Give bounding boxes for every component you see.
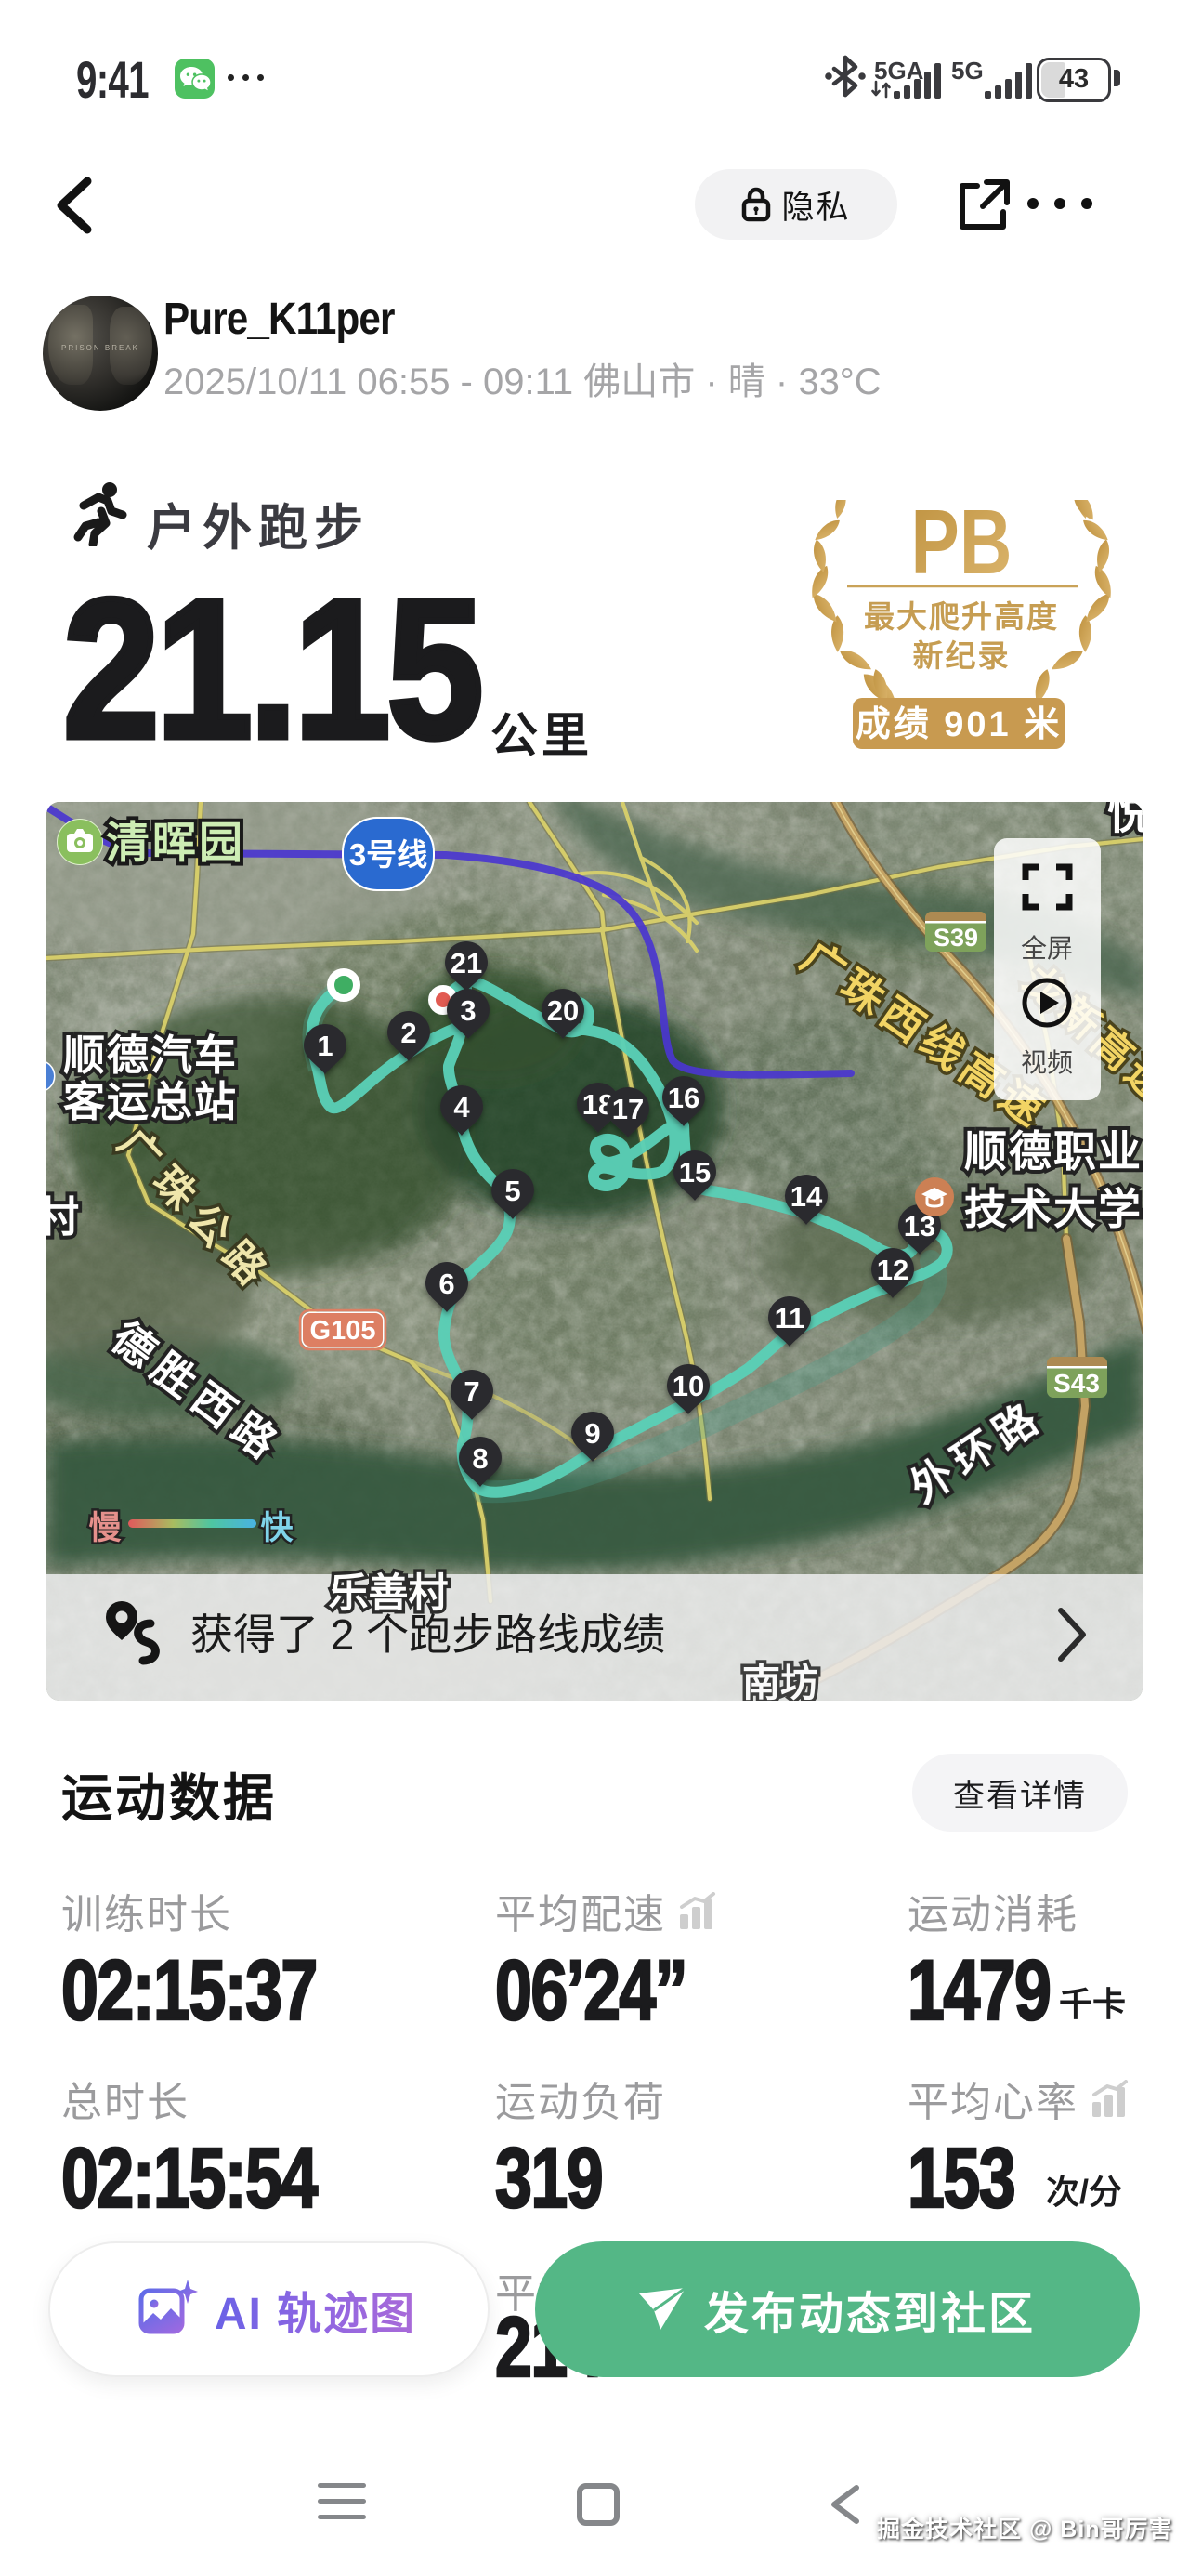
svg-text:最大爬升高度: 最大爬升高度: [864, 599, 1059, 634]
svg-text:7: 7: [464, 1375, 479, 1408]
svg-text:全屏: 全屏: [1021, 934, 1073, 963]
svg-text:17: 17: [612, 1093, 644, 1125]
svg-text:清晖园: 清晖园: [106, 818, 245, 867]
svg-text:获得了 2 个跑步路线成绩: 获得了 2 个跑步路线成绩: [190, 1610, 665, 1659]
svg-text:G105: G105: [310, 1316, 376, 1346]
svg-text:顺德汽车: 顺德汽车: [63, 1032, 238, 1079]
svg-text:S39: S39: [934, 924, 978, 952]
svg-text:视频: 视频: [1021, 1048, 1073, 1077]
svg-text:4: 4: [453, 1091, 470, 1124]
svg-text:5: 5: [504, 1175, 520, 1207]
svg-text:9: 9: [584, 1417, 600, 1450]
svg-text:14: 14: [790, 1180, 823, 1213]
svg-text:南坊: 南坊: [742, 1662, 818, 1701]
svg-text:顺德职业: 顺德职业: [964, 1127, 1143, 1176]
svg-text:悦: 悦: [1107, 802, 1143, 838]
svg-text:客运总站: 客运总站: [63, 1078, 238, 1125]
svg-text:快: 快: [260, 1510, 294, 1546]
svg-text:11: 11: [775, 1302, 805, 1334]
svg-text:慢: 慢: [88, 1510, 122, 1546]
svg-text:乐善村: 乐善村: [329, 1571, 449, 1616]
svg-text:新纪录: 新纪录: [913, 638, 1011, 673]
svg-text:1: 1: [317, 1030, 333, 1062]
svg-text:技术大学: 技术大学: [964, 1185, 1143, 1233]
svg-text:3: 3: [460, 994, 476, 1027]
svg-text:2: 2: [400, 1017, 416, 1049]
svg-text:8: 8: [472, 1442, 488, 1475]
svg-text:20: 20: [547, 994, 579, 1027]
svg-text:6: 6: [438, 1268, 454, 1300]
svg-text:PB: PB: [911, 500, 1013, 593]
svg-text:21: 21: [451, 947, 482, 979]
svg-text:村: 村: [46, 1193, 79, 1241]
svg-text:16: 16: [668, 1082, 699, 1114]
svg-text:3号线: 3号线: [349, 837, 427, 872]
svg-text:S43: S43: [1053, 1369, 1100, 1398]
svg-text:10: 10: [673, 1370, 704, 1402]
svg-text:成绩 901 米: 成绩 901 米: [856, 705, 1063, 744]
svg-text:12: 12: [877, 1254, 908, 1286]
svg-text:15: 15: [679, 1156, 711, 1189]
